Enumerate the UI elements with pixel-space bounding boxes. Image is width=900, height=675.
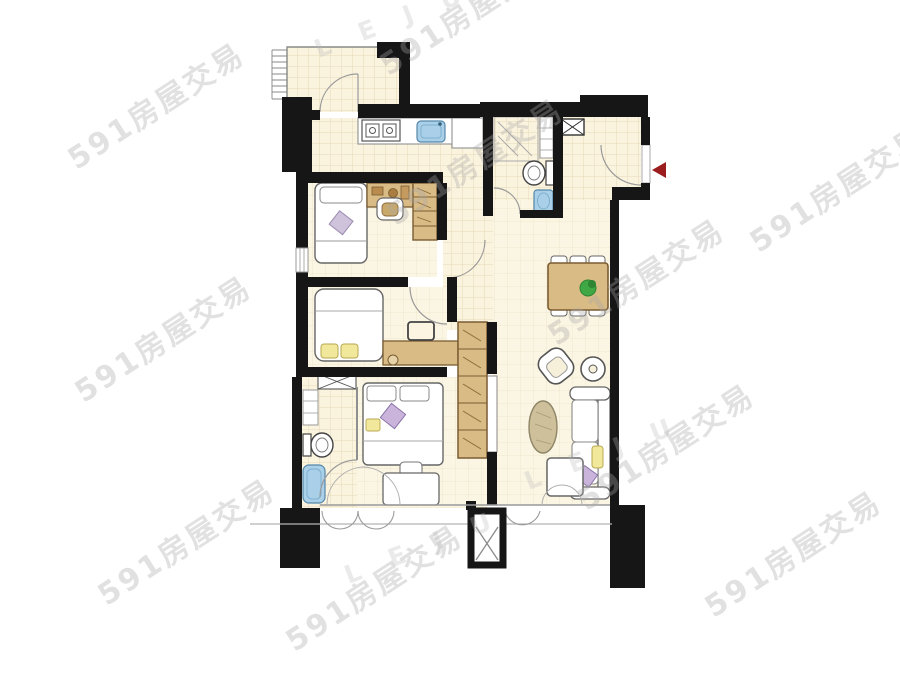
single-bed bbox=[315, 183, 367, 263]
pillow-yellow bbox=[341, 344, 358, 358]
coffee-table bbox=[547, 458, 583, 496]
washbasin-top-icon bbox=[534, 190, 553, 213]
pillar-bottom-left bbox=[280, 508, 320, 568]
double-bed-middle bbox=[315, 289, 383, 361]
toilet-bottom-icon bbox=[303, 433, 333, 457]
dining-table bbox=[548, 263, 608, 310]
window-arc bbox=[322, 511, 358, 529]
double-bed-master bbox=[363, 383, 443, 465]
floor-lamp-icon bbox=[581, 357, 605, 381]
window-arc bbox=[358, 511, 394, 529]
toilet-top-icon bbox=[523, 161, 554, 185]
desk-chair bbox=[377, 198, 403, 220]
floorplan-drawing bbox=[0, 0, 900, 675]
dining-set bbox=[548, 256, 608, 316]
floorplan-page: 591房屋交易 591房屋交易 591房屋交易 591房屋交易 591房屋交易 … bbox=[0, 0, 900, 675]
bathroom-shelf bbox=[540, 117, 553, 158]
kitchen bbox=[358, 118, 483, 148]
elevator-shaft bbox=[471, 511, 503, 565]
wardrobe-top bbox=[413, 183, 437, 240]
bath-shelf bbox=[303, 390, 318, 425]
entry-doorway bbox=[642, 145, 650, 183]
window-arc bbox=[505, 511, 540, 525]
window-left bbox=[296, 248, 308, 272]
sofa-cushion-yellow bbox=[592, 446, 603, 468]
desk-monitor bbox=[408, 322, 434, 340]
wardrobe-tall bbox=[458, 322, 487, 458]
pillow-yellow bbox=[321, 344, 338, 358]
shoe-cabinet-icon bbox=[561, 119, 584, 135]
master-desk bbox=[383, 473, 439, 505]
master-door-leaf bbox=[487, 376, 497, 452]
entrance-arrow-icon bbox=[652, 162, 666, 178]
stove-icon bbox=[362, 120, 400, 141]
balcony-railing-hatch bbox=[272, 50, 287, 99]
kitchen-counter-corner bbox=[452, 118, 483, 148]
stool bbox=[388, 355, 398, 365]
plant-icon-detail bbox=[588, 280, 596, 288]
kitchen-sink-icon bbox=[417, 121, 445, 142]
pillar-bottom-right bbox=[610, 505, 645, 588]
pillow-yellow bbox=[366, 419, 380, 431]
